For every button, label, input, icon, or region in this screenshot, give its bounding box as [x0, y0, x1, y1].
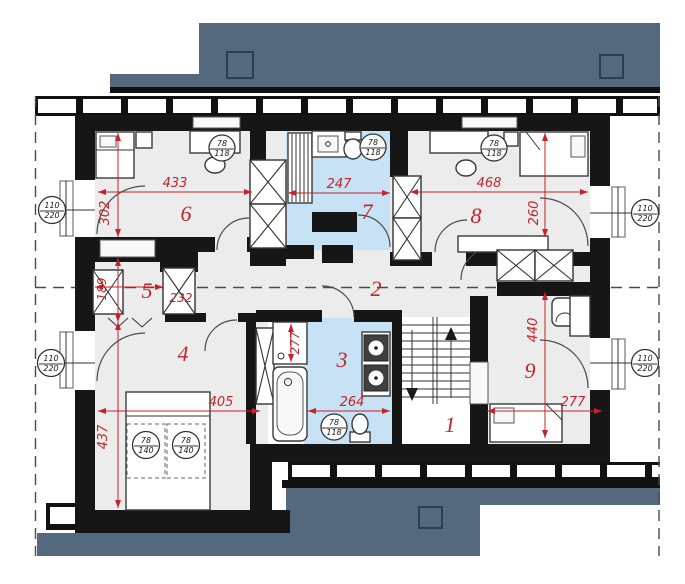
- dim-room9-width: 277: [561, 395, 587, 410]
- svg-text:110: 110: [43, 354, 58, 363]
- wardrobe-icon: [497, 250, 535, 281]
- dim-room6-width: 433: [163, 176, 188, 191]
- svg-text:78: 78: [181, 436, 191, 445]
- svg-text:140: 140: [178, 446, 193, 455]
- wall-niche: [100, 240, 155, 257]
- skylight-marker: 78 118: [209, 135, 235, 161]
- under-stair-closet: [470, 362, 488, 404]
- room-label-3: 3: [336, 347, 348, 372]
- pillow: [100, 136, 116, 147]
- dim-room9-depth: 440: [526, 318, 541, 343]
- svg-text:118: 118: [365, 148, 380, 157]
- table: [570, 296, 590, 336]
- svg-text:118: 118: [486, 149, 501, 158]
- dim-room4-width: 405: [209, 395, 234, 410]
- wardrobe-icon: [256, 328, 274, 404]
- dim-room3-width: 264: [340, 395, 365, 410]
- room-label-2: 2: [371, 276, 382, 301]
- svg-text:78: 78: [217, 139, 227, 148]
- skylight-marker: 78 118: [321, 414, 347, 440]
- svg-text:78: 78: [329, 418, 339, 427]
- skylight-marker: 78 140: [173, 432, 200, 459]
- svg-text:220: 220: [637, 214, 652, 223]
- room-label-4: 4: [178, 341, 189, 366]
- chair: [456, 160, 476, 176]
- wardrobe-icon: [535, 250, 573, 281]
- eaves-band-top: [35, 96, 660, 116]
- sink: [318, 136, 338, 152]
- eaves-band-bottom-right: [288, 462, 660, 480]
- room-label-6: 6: [181, 201, 192, 226]
- svg-text:110: 110: [44, 201, 59, 210]
- svg-text:118: 118: [214, 149, 229, 158]
- desk: [430, 131, 488, 153]
- room-label-5: 5: [142, 278, 153, 303]
- dim-room6-depth: 302: [98, 201, 113, 226]
- svg-text:78: 78: [141, 436, 151, 445]
- skylight-marker: 78 118: [360, 134, 386, 160]
- dim-room8-width: 468: [477, 176, 502, 191]
- skylight-marker: 78 140: [133, 432, 160, 459]
- wardrobe-icon: [393, 218, 421, 260]
- floor-plan-drawing: 433 247 468 302 189 437 260 440: [0, 0, 685, 584]
- skylight-marker: 78 118: [481, 135, 507, 161]
- wardrobe-icon: [250, 160, 286, 204]
- svg-text:220: 220: [637, 364, 652, 373]
- svg-text:140: 140: [138, 446, 153, 455]
- pillow: [571, 136, 585, 157]
- dim-room8-depth: 260: [527, 201, 542, 226]
- svg-text:78: 78: [489, 139, 499, 148]
- dim-room7-width: 247: [327, 177, 353, 192]
- toilet: [352, 414, 368, 434]
- wardrobe-icon: [250, 204, 286, 248]
- room-label-1: 1: [445, 412, 456, 437]
- room-label-8: 8: [471, 203, 482, 228]
- svg-text:110: 110: [637, 204, 652, 213]
- roof-top: [110, 23, 660, 93]
- dim-room4-depth: 437: [96, 424, 111, 450]
- dim-room3-depth: 277: [288, 331, 302, 354]
- room-label-9: 9: [525, 358, 536, 383]
- svg-text:118: 118: [326, 428, 341, 437]
- svg-text:78: 78: [368, 138, 378, 147]
- svg-text:220: 220: [43, 364, 58, 373]
- floor-plan: 433 247 468 302 189 437 260 440: [0, 0, 685, 584]
- room-label-7: 7: [362, 199, 374, 224]
- dim-room5-width: 232: [170, 291, 193, 305]
- wardrobe-icon: [393, 176, 421, 218]
- toilet: [344, 139, 362, 159]
- pillow: [494, 408, 514, 423]
- svg-text:220: 220: [44, 211, 59, 220]
- nightstand: [136, 132, 152, 148]
- svg-text:110: 110: [637, 354, 652, 363]
